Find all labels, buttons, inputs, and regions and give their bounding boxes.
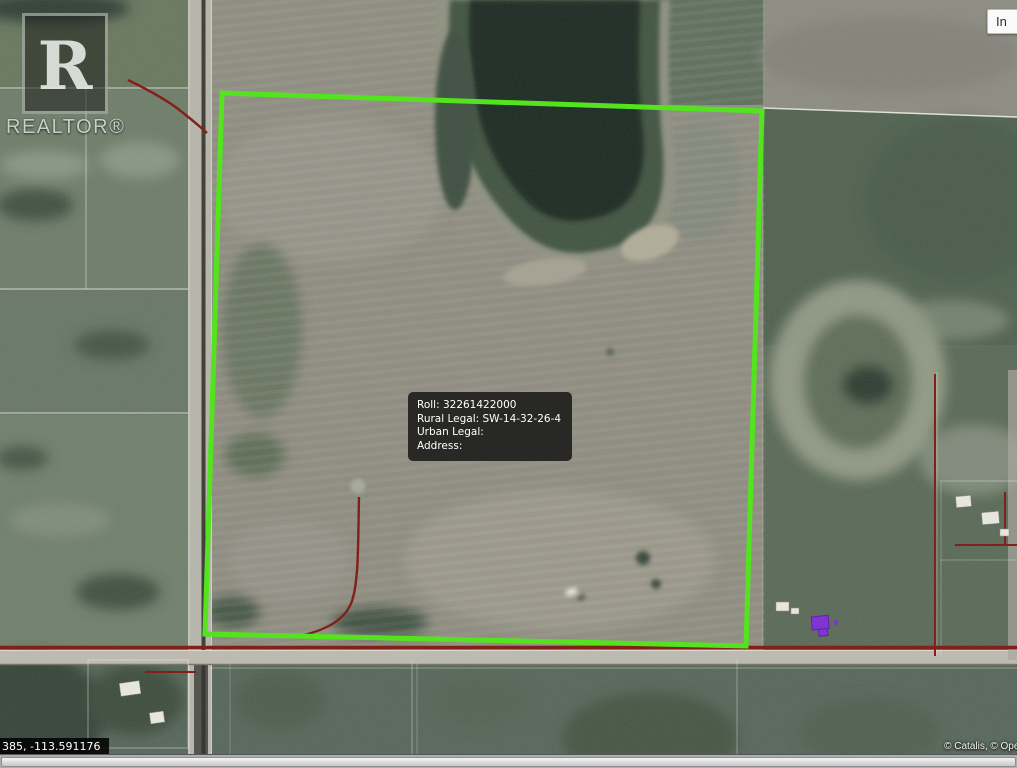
map-attribution: © Catalis, © Open	[944, 741, 1017, 752]
satellite-imagery	[0, 0, 1017, 768]
info-button[interactable]: In	[987, 9, 1017, 34]
scrollbar-thumb[interactable]	[1, 757, 1016, 767]
horizontal-scrollbar[interactable]	[0, 754, 1017, 768]
map-canvas[interactable]: R REALTOR® In Roll: 32261422000 Rural Le…	[0, 0, 1017, 768]
noise-overlay	[0, 0, 1017, 768]
